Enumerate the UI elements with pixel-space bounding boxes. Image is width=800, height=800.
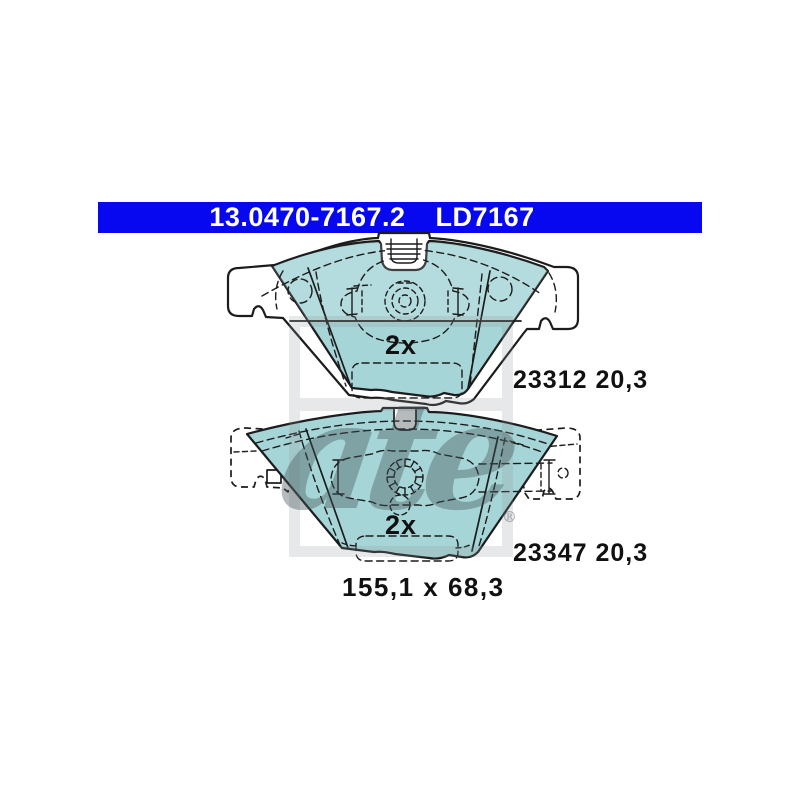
quantity-label-top: 2x — [385, 332, 417, 359]
pad-reference-bottom: 23347 20,3 — [513, 541, 648, 566]
quantity-label-bottom: 2x — [385, 512, 417, 539]
dimensions-label: 155,1 x 68,3 — [342, 574, 505, 600]
pad-reference-top: 23312 20,3 — [513, 368, 648, 393]
brake-pad-technical-drawing — [0, 0, 800, 800]
sensor-pocket — [394, 409, 416, 430]
product-image: 13.0470-7167.2 LD7167 — [0, 0, 800, 800]
